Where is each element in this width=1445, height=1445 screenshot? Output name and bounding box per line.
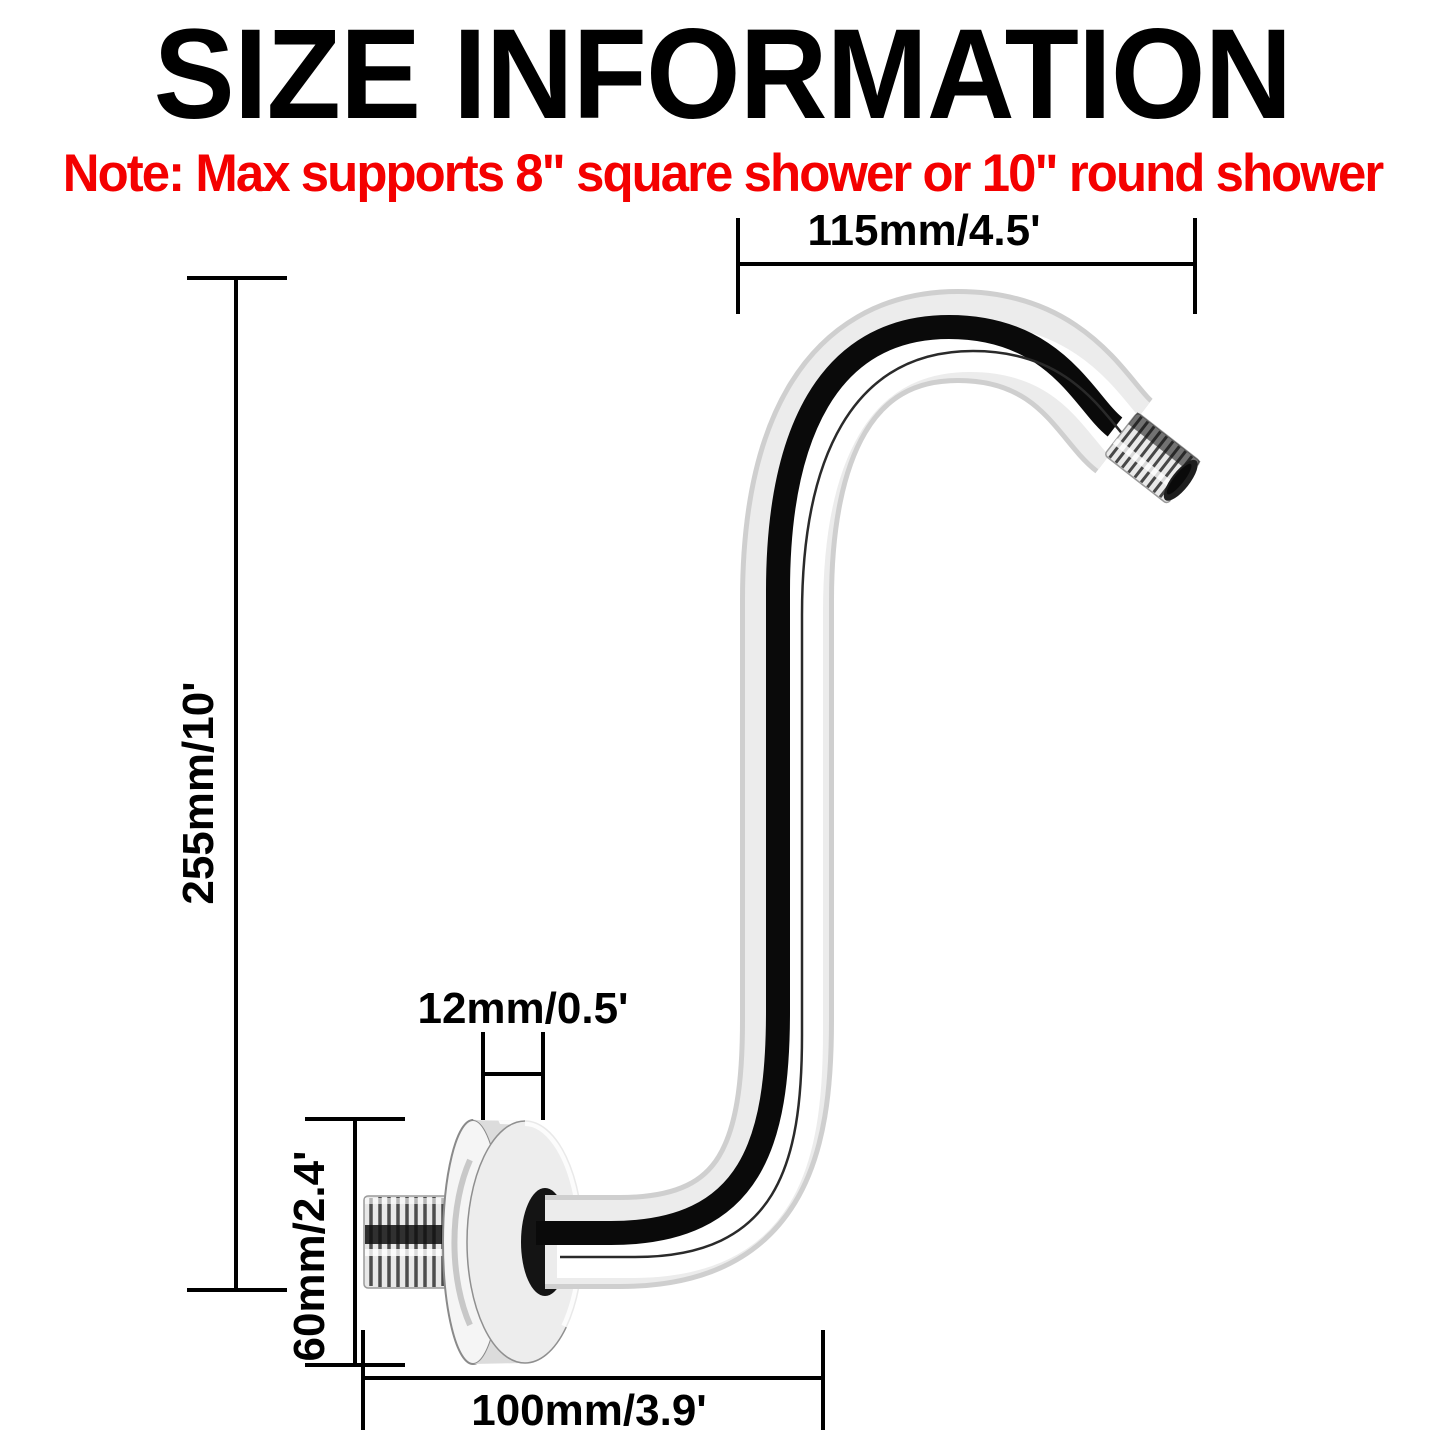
dim-flange-diameter-line: [353, 1117, 357, 1367]
dim-bottom-width-tick-left: [361, 1330, 365, 1430]
dim-flange-thickness-ext-left: [481, 1032, 485, 1120]
dim-height-line: [234, 276, 238, 1292]
dim-top-width-label: 115mm/4.5': [724, 206, 1124, 256]
dim-height-tick-bottom: [187, 1288, 287, 1292]
dim-top-width-tick-right: [1193, 218, 1197, 314]
dim-bottom-width-line: [361, 1376, 825, 1380]
dim-bottom-width-tick-right: [821, 1330, 825, 1430]
dim-flange-thickness-ext-right: [541, 1032, 545, 1120]
dim-flange-thickness-line: [481, 1072, 545, 1076]
dim-flange-diameter-label: 60mm/2.4': [285, 1056, 335, 1445]
product-size-diagram: SIZE INFORMATION Note: Max supports 8" s…: [0, 0, 1445, 1445]
dim-flange-thickness-label: 12mm/0.5': [323, 984, 723, 1034]
dim-top-width-line: [736, 262, 1197, 266]
arm-tube: [536, 327, 1139, 1257]
dim-bottom-width-label: 100mm/3.9': [389, 1386, 789, 1436]
dim-height-label: 255mm/10': [174, 593, 224, 993]
dim-height-tick-top: [187, 276, 287, 280]
wall-thread-nipple: [364, 1196, 448, 1288]
